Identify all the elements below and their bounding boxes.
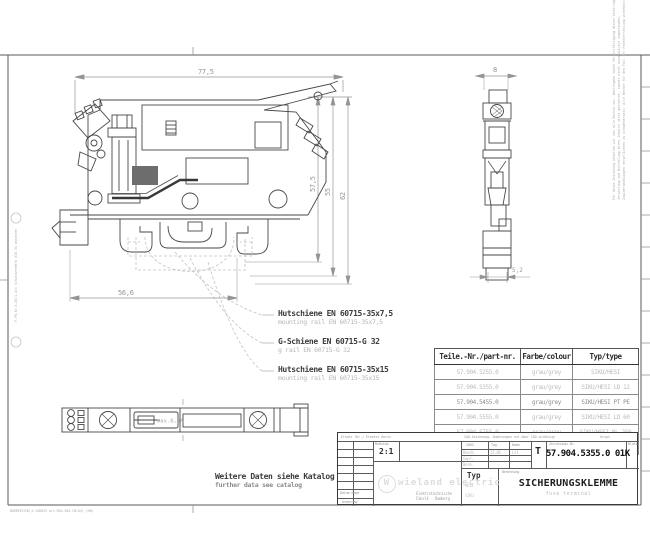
rail-leaders <box>262 315 274 371</box>
ghost-rails <box>128 237 262 371</box>
cell-colour: grau/grey <box>521 410 573 425</box>
cell-part: 57.904.5255.0 <box>435 365 521 380</box>
front-dim-width-label: 8 <box>493 66 497 74</box>
front-dim-foot-label: 5,2 <box>512 267 523 274</box>
company-logo: W <box>378 475 396 493</box>
parts-table-header: Teile.-Nr./part-nr. Farbe/colour Typ/typ… <box>435 349 639 365</box>
rail-label-hutschiene-7-5: Hutschiene EN 60715-35x7,5 mounting rail… <box>278 309 393 326</box>
drawing-no-label: Zeichnungs-Nr. <box>549 442 576 446</box>
title-block: Ersatz für / Ersetzt durch CAD-Zeichnung… <box>337 432 638 505</box>
col-header-colour: Farbe/colour <box>521 349 573 365</box>
cell-type: SIKU/HESI LD 12 <box>573 380 639 395</box>
sign-row-label: Gepr. <box>463 456 474 461</box>
rev-footer-aenderung: Änderung <box>342 500 357 504</box>
blatt-label: Blatt <box>628 442 638 446</box>
rail-label-en: mounting rail EN 60715-35x7,5 <box>278 318 393 326</box>
cell-type: SIKU/HESI LD 60 <box>573 410 639 425</box>
cell-colour: grau/grey <box>521 395 573 410</box>
year-label: 2003 <box>466 443 474 447</box>
sign-row-label: Bearb. <box>463 450 476 455</box>
drawing-sheet: 77,5 57,5 55 62 <box>0 0 650 560</box>
rev-footer-datum-name: Datum Name <box>340 491 359 495</box>
rights-notice-line3: Zuwiderhandlungen verpflichten zu Schade… <box>622 0 626 200</box>
rail-label-en: g rail EN 60715-G 32 <box>278 346 380 354</box>
dim-width-label: 77,5 <box>198 68 214 76</box>
dim-h1-label: 57,5 <box>309 176 317 192</box>
table-row: 57.904.5555.0 grau/grey SIKU/HESI LD 60 <box>435 410 639 425</box>
rail-label-en: mounting rail EN 60715-35x15 <box>278 374 388 382</box>
strip-left: Ersatz für / Ersetzt durch <box>341 435 391 439</box>
scale-value: 2:1 <box>379 447 393 456</box>
cell-type: SIKU/HESI PT PE <box>573 395 639 410</box>
table-row: 57.904.5255.0 grau/grey SIKU/HESI <box>435 365 639 380</box>
rights-notice-line1: Für diese Zeichnung behalten wir uns all… <box>612 0 616 200</box>
fuse-rating-note: max.6,3A <box>157 419 184 425</box>
cell-colour: grau/grey <box>521 365 573 380</box>
table-row: 57.904.5455.0 grau/grey SIKU/HESI PT PE <box>435 395 639 410</box>
strip-mid: CAD-Zeichnung. Änderungen nur über CAD z… <box>464 435 556 439</box>
col-header-part-nr: Teile.-Nr./part-nr. <box>435 349 521 365</box>
cell-type: SIKU/HESI <box>573 365 639 380</box>
sign-row-label: Norm. <box>463 462 474 467</box>
scale-label: Maßstab <box>375 442 388 446</box>
typ-line2: SIKU <box>465 493 473 498</box>
top-view-drawing: max.6,3A <box>62 399 308 441</box>
t-marker: T <box>535 446 541 457</box>
drawing-subtitle: fuse terminal <box>498 491 639 497</box>
col-header-type: Typ/type <box>573 349 639 365</box>
name-label: Name <box>512 443 520 447</box>
drawing-number: 57.904.5355.0 01K <box>546 449 626 459</box>
cell-colour: grau/grey <box>521 380 573 395</box>
dim-h2-label: 55 <box>324 188 332 196</box>
front-view-drawing: 8 <box>470 66 530 283</box>
rights-notice-line2: Verwertung und Mitteilung ihres Inhalts … <box>617 16 621 200</box>
tag-label: Tag <box>491 443 497 447</box>
rail-label-g-schiene: G-Schiene EN 60715-G 32 g rail EN 60715-… <box>278 337 380 354</box>
cell-part: 57.904.5555.0 <box>435 410 521 425</box>
dim-base-label: 56,6 <box>118 289 134 297</box>
typ-label: Typ <box>467 471 481 480</box>
catalog-note: Weitere Daten siehe Katalog further data… <box>215 472 334 489</box>
dim-h3-label: 62 <box>339 192 347 200</box>
catalog-note-en: further data see catalog <box>215 481 334 489</box>
rail-label-de: G-Schiene EN 60715-G 32 <box>278 337 380 346</box>
rail-label-de: Hutschiene EN 60715-35x15 <box>278 365 388 374</box>
rail-label-hutschiene-15: Hutschiene EN 60715-35x15 mounting rail … <box>278 365 388 382</box>
left-margin-note: F-PN-Nr-4-05/1-alt Schutzvermerk DIN 34 … <box>14 229 18 322</box>
company-sub2: Fabrik · Bamberg <box>416 496 450 501</box>
cell-part: 57.904.5455.0 <box>435 395 521 410</box>
strip-right: Urspr. <box>600 435 611 439</box>
table-row: 57.904.5355.0 grau/grey SIKU/HESI LD 12 <box>435 380 639 395</box>
benennung-label: Benennung <box>502 470 519 474</box>
sign-row-name: Lst <box>512 450 518 455</box>
typ-line1: HESI <box>465 483 473 488</box>
sign-row-tag: 12.06 <box>490 450 501 455</box>
company-name: wieland electric <box>398 478 501 488</box>
drawing-title: SICHERUNGSKLEMME <box>498 478 639 489</box>
rail-label-de: Hutschiene EN 60715-35x7,5 <box>278 309 393 318</box>
file-path-note: NORMZEICHN_a CAD035 art.KDA-500-CB(A4) (… <box>10 509 93 513</box>
cell-part: 57.904.5355.0 <box>435 380 521 395</box>
catalog-note-de: Weitere Daten siehe Katalog <box>215 472 334 481</box>
